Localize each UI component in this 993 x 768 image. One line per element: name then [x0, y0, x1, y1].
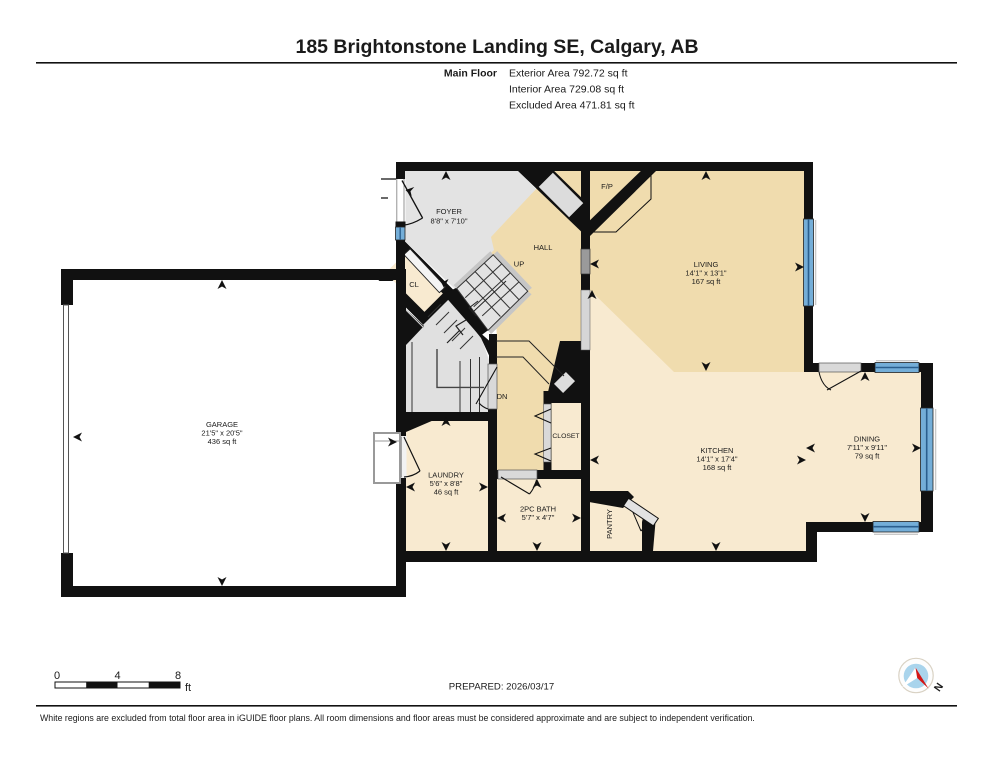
svg-text:ft: ft	[185, 682, 191, 694]
svg-text:436 sq ft: 436 sq ft	[208, 437, 238, 446]
svg-text:Interior Area 729.08 sq ft: Interior Area 729.08 sq ft	[509, 84, 624, 96]
svg-text:UP: UP	[514, 260, 524, 269]
svg-text:0: 0	[54, 670, 60, 682]
svg-text:Exterior Area 792.72 sq ft: Exterior Area 792.72 sq ft	[509, 68, 628, 80]
svg-text:F/P: F/P	[601, 182, 613, 191]
svg-text:167 sq ft: 167 sq ft	[692, 277, 722, 286]
svg-text:PREPARED: 2026/03/17: PREPARED: 2026/03/17	[449, 682, 554, 693]
svg-text:DN: DN	[497, 392, 508, 401]
svg-text:CLOSET: CLOSET	[552, 433, 579, 440]
svg-text:White regions are excluded fro: White regions are excluded from total fl…	[40, 713, 755, 723]
svg-text:PANTRY: PANTRY	[605, 509, 614, 539]
svg-text:8'8" x 7'10": 8'8" x 7'10"	[431, 217, 468, 226]
svg-text:HALL: HALL	[534, 243, 553, 252]
svg-text:46 sq ft: 46 sq ft	[434, 488, 460, 497]
svg-text:FOYER: FOYER	[436, 207, 462, 216]
svg-text:185 Brightonstone Landing SE,: 185 Brightonstone Landing SE, Calgary, A…	[295, 36, 698, 58]
svg-text:Main Floor: Main Floor	[444, 68, 497, 80]
svg-text:168 sq ft: 168 sq ft	[703, 463, 733, 472]
svg-text:5'7" x 4'7": 5'7" x 4'7"	[522, 513, 555, 522]
svg-text:Excluded Area 471.81 sq ft: Excluded Area 471.81 sq ft	[509, 100, 635, 112]
svg-text:4: 4	[114, 670, 120, 682]
svg-text:8: 8	[175, 670, 181, 682]
svg-text:79 sq ft: 79 sq ft	[855, 452, 881, 461]
svg-text:CL: CL	[409, 280, 419, 289]
